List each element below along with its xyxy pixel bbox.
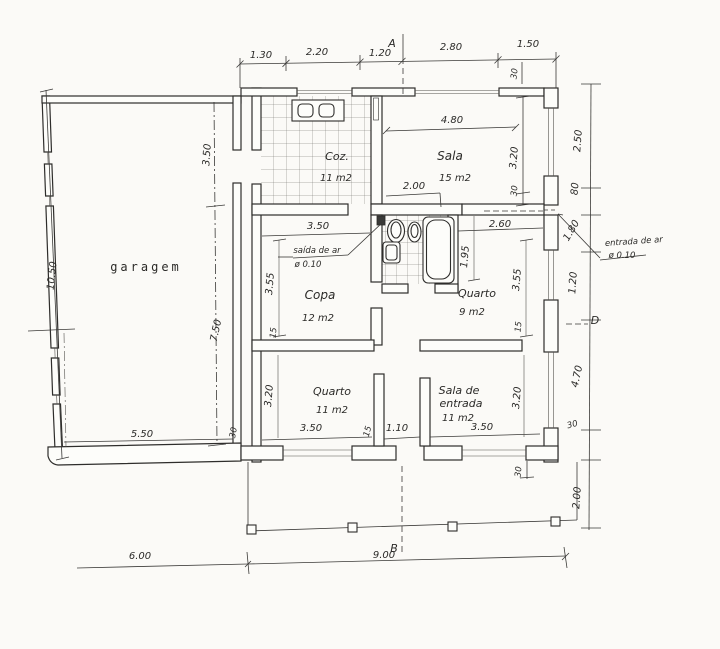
dim-garage-upper: 3.50	[201, 143, 214, 166]
room-label-bedroom11: Quarto	[313, 385, 351, 398]
dim-bedroom11-width: 3.50	[300, 423, 322, 434]
dim-dining-wall: 15	[269, 327, 280, 339]
bathtub	[423, 217, 454, 283]
dim-bedroom9-width: 2.60	[489, 219, 511, 230]
dim-bedroom11-wall: 15	[362, 425, 374, 438]
bidet	[408, 222, 421, 242]
room-label-living: Sala	[437, 149, 463, 163]
dim-bottom-garage-span: 6.00	[129, 551, 151, 562]
dim-top-1: 1.30	[250, 50, 272, 61]
room-label-kitchen: Coz.	[325, 150, 349, 163]
kitchen-sink	[292, 100, 344, 121]
dim-bedroom9-wall: 15	[514, 321, 525, 333]
room-label-entry-1: Sala de	[439, 384, 480, 397]
area-label-dining: 12 m2	[302, 313, 334, 324]
dim-garage-width: 5.50	[131, 429, 153, 440]
dim-bedroom9-depth: 3.55	[511, 268, 524, 291]
dim-hall-width: 1.10	[386, 423, 408, 434]
dim-bottom-wall: 30	[514, 466, 525, 478]
room-label-bedroom9: Quarto	[458, 287, 496, 300]
dim-garage-wall: 30	[228, 426, 240, 438]
area-label-kitchen: 11 m2	[320, 173, 352, 184]
dim-right-6: 30	[566, 419, 579, 431]
section-marker-d: D	[591, 314, 599, 327]
dim-garage-lower: 7.50	[209, 318, 224, 342]
room-label-garage: garagem	[110, 260, 182, 274]
dim-right-5: 4.70	[570, 364, 585, 388]
air-outlet-diameter: ø 0.10	[294, 260, 322, 270]
air-outlet-label: saída de ar	[293, 246, 341, 256]
dim-bath-depth: 1.95	[459, 245, 472, 268]
area-label-entry: 11 m2	[442, 413, 474, 424]
dim-right-1: 2.50	[572, 129, 585, 152]
room-label-dining: Copa	[305, 288, 336, 302]
air-inlet-diameter: ø 0.10	[608, 251, 636, 261]
dim-top-5: 1.50	[517, 39, 539, 50]
dim-dining-width: 3.50	[307, 221, 329, 232]
dim-top-3: 1.20	[369, 48, 391, 59]
dim-right-7: 2.00	[571, 486, 584, 509]
area-label-living: 15 m2	[439, 173, 471, 184]
dim-living-opening: 2.00	[403, 181, 425, 192]
room-label-entry-2: entrada	[439, 397, 482, 410]
washbasin	[383, 242, 400, 263]
dim-entry-width: 3.50	[471, 422, 493, 433]
dim-living-wall: 30	[510, 185, 521, 197]
dim-left-height: 10.50	[46, 261, 60, 291]
dim-bottom-house-span: 9.00	[373, 550, 395, 561]
dim-right-3: 1.80	[562, 218, 583, 243]
dim-right-4: 1.20	[567, 271, 580, 294]
dim-bedroom11-depth: 3.20	[263, 384, 276, 407]
dim-living-depth: 3.20	[508, 146, 521, 169]
dim-dining-depth: 3.55	[264, 272, 277, 295]
porch	[247, 462, 577, 534]
toilet	[388, 220, 405, 243]
dim-top-2: 2.20	[306, 47, 328, 58]
dim-top-4: 2.80	[440, 42, 462, 53]
dim-living-width: 4.80	[441, 115, 463, 126]
area-label-bedroom9: 9 m2	[459, 307, 485, 318]
floor-plan-drawing: A B D 1.30 2.20 1.20 2.80 1.50 30 2.50 8…	[0, 0, 720, 649]
dim-right-2: 80	[570, 182, 582, 195]
area-label-bedroom11: 11 m2	[316, 405, 348, 416]
air-inlet-label: entrada de ar	[605, 235, 664, 249]
dim-top-wall: 30	[509, 68, 520, 80]
dim-entry-depth: 3.20	[511, 386, 524, 409]
